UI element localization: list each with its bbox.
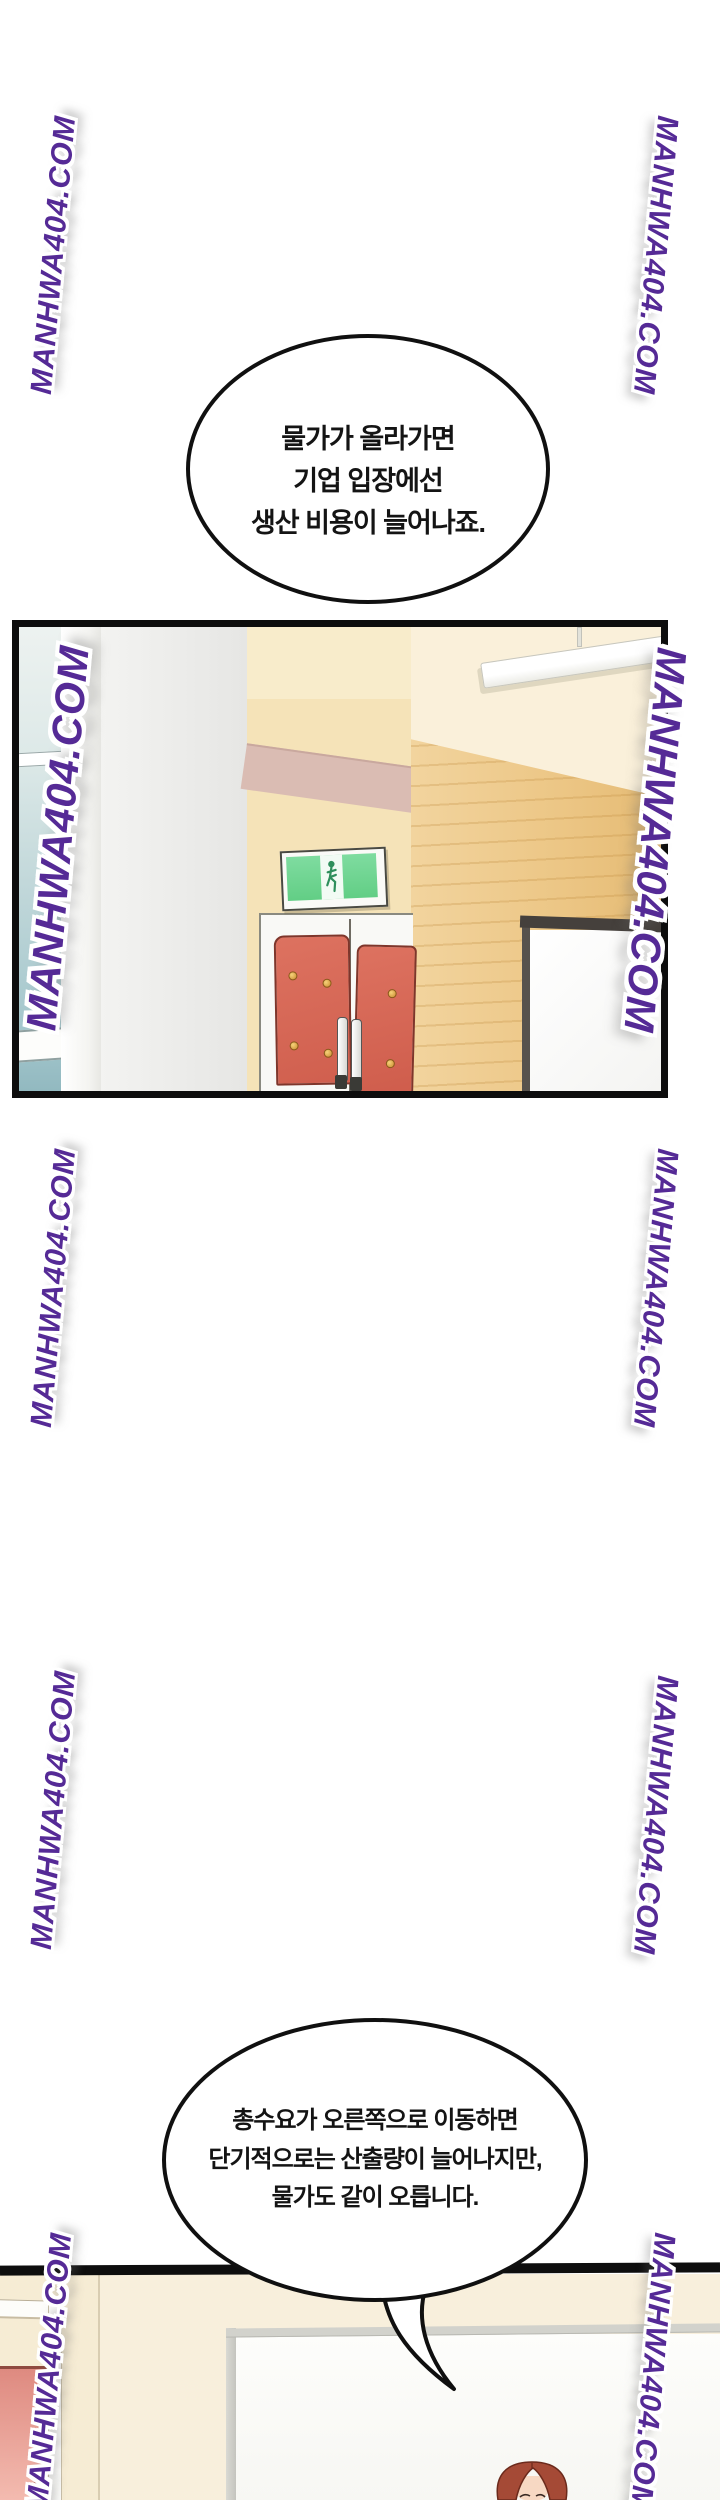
exit-sign-door-strip	[320, 855, 344, 900]
bubble-2-line-3: 물가도 같이 오릅니다.	[208, 2179, 541, 2218]
door-handle	[337, 1017, 348, 1081]
door-rivet	[324, 1049, 333, 1058]
whiteboard-frame-left	[522, 926, 530, 1091]
speech-bubble-2: 총수요가 오른쪽으로 이동하면 단기적으로는 산출량이 늘어나지만, 물가도 같…	[162, 2018, 588, 2302]
watermark-text: MANHWA404.COM	[626, 1147, 684, 1429]
watermark-text: MANHWA404.COM	[626, 114, 684, 396]
comic-panel-hallway	[12, 620, 668, 1098]
bubble-1-line-2: 기업 입장에선	[251, 461, 485, 503]
exit-sign	[280, 847, 389, 912]
running-man-icon	[320, 855, 344, 900]
bubble-1-line-3: 생산 비용이 늘어나죠.	[251, 503, 485, 545]
comic-page: MANHWA404.COM MANHWA404.COM MANHWA404.CO…	[0, 0, 720, 2500]
door-handle-base	[335, 1075, 347, 1089]
speech-bubble-1-text: 물가가 올라가면 기업 입장에선 생산 비용이 늘어나죠.	[251, 393, 485, 545]
glass-door-sill	[16, 1027, 64, 1062]
door-rivet	[290, 1041, 299, 1050]
bubble-2-line-1: 총수요가 오른쪽으로 이동하면	[208, 2102, 541, 2141]
door-rivet	[288, 971, 297, 980]
whiteboard-frame-left	[226, 2328, 236, 2500]
bubble-1-line-1: 물가가 올라가면	[251, 419, 485, 461]
light-fixture-rod	[577, 627, 582, 647]
speech-bubble-1: 물가가 올라가면 기업 입장에선 생산 비용이 늘어나죠.	[186, 334, 550, 604]
fluorescent-light-fixture	[480, 635, 668, 689]
comic-panel-classroom	[0, 2274, 720, 2500]
watermark-text: MANHWA404.COM	[25, 114, 83, 396]
door-handle	[351, 1019, 362, 1083]
door-rivet	[386, 1059, 395, 1068]
speech-bubble-2-text: 총수요가 오른쪽으로 이동하면 단기적으로는 산출량이 늘어나지만, 물가도 같…	[208, 2102, 541, 2219]
door-handle-base	[350, 1077, 362, 1091]
watermark-text: MANHWA404.COM	[25, 1669, 83, 1951]
wall-seam	[98, 2274, 100, 2500]
exit-sign-green-face	[286, 853, 378, 901]
cream-upper-wall	[411, 627, 661, 797]
red-haired-woman-head	[494, 2460, 570, 2500]
tan-wall-top	[247, 627, 411, 699]
gray-wall	[101, 627, 249, 1091]
red-door-right	[353, 944, 417, 1096]
watermark-text: MANHWA404.COM	[25, 1147, 83, 1429]
door-rivet	[322, 979, 331, 988]
bubble-2-line-2: 단기적으로는 산출량이 늘어나지만,	[208, 2141, 541, 2180]
watermark-text: MANHWA404.COM	[626, 1674, 684, 1956]
door-rivet	[388, 989, 397, 998]
